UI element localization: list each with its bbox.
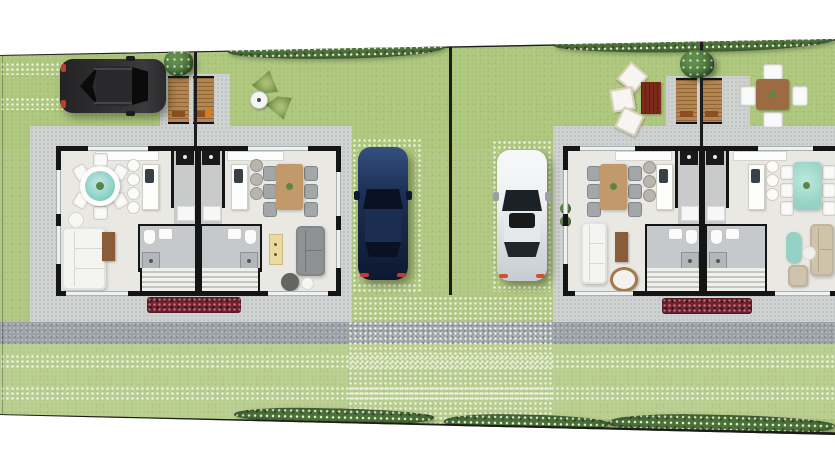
- bar-stool: [643, 189, 656, 202]
- armchair-beige: [788, 265, 808, 287]
- car-roof: [365, 209, 401, 242]
- coffee-table-wood: [615, 232, 628, 262]
- car-mirror: [545, 192, 551, 201]
- house-2-wall-left: [563, 146, 568, 296]
- washer-door: [713, 155, 717, 159]
- sofa-cushion-line: [589, 225, 590, 281]
- sofa-cushion-line: [590, 243, 604, 244]
- sofa-white: [581, 222, 607, 284]
- window: [758, 146, 813, 151]
- car-rear-window: [365, 242, 401, 257]
- car-taillight: [397, 273, 406, 277]
- suv-roof: [96, 66, 132, 106]
- house-2-party-wall: [699, 146, 705, 296]
- suv-taillight: [61, 100, 66, 108]
- car-rear-window: [504, 242, 540, 257]
- car-mirror: [354, 191, 360, 200]
- dining-chair: [780, 201, 794, 216]
- bar-stool: [643, 175, 656, 188]
- car-taillight: [499, 274, 508, 278]
- dining-chair: [780, 165, 794, 180]
- dining-chair: [822, 201, 835, 216]
- suv-roof-rail: [94, 68, 136, 70]
- toilet: [685, 229, 698, 245]
- table-plant: [610, 183, 617, 190]
- bar-stool: [643, 161, 656, 174]
- suv-dark: [60, 59, 166, 113]
- bar-stool: [766, 174, 779, 187]
- kitchen-sink: [659, 169, 668, 183]
- dining-table-teal-glass: [793, 162, 821, 210]
- washer: [706, 151, 724, 165]
- patio-door: [775, 291, 830, 296]
- window: [563, 226, 568, 264]
- bathroom: [705, 224, 767, 272]
- dining-table-wood: [600, 164, 627, 210]
- dining-chair: [822, 165, 835, 180]
- car-mirror: [493, 192, 499, 201]
- entry-mat: [707, 206, 725, 221]
- shower-drain: [716, 259, 720, 263]
- shower: [681, 252, 699, 269]
- sink-basin: [725, 228, 740, 240]
- hall-wall: [675, 150, 678, 208]
- car-taillight: [536, 274, 545, 278]
- suv-windshield: [132, 67, 148, 105]
- dining-chair: [628, 184, 642, 199]
- sofa-cushion-line: [819, 249, 832, 250]
- window: [580, 146, 635, 151]
- bathroom: [645, 224, 703, 272]
- sofa-cushion-line: [818, 228, 819, 272]
- car-windshield: [502, 190, 542, 211]
- car-windshield: [363, 189, 403, 209]
- car-blue: [358, 147, 408, 280]
- kitchen-sink: [751, 169, 760, 183]
- kitchen-counter: [733, 151, 787, 161]
- car-mirror: [406, 191, 412, 200]
- suv-roof-rail: [94, 102, 136, 104]
- dining-chair: [587, 202, 601, 217]
- dining-chair: [587, 184, 601, 199]
- washer-door: [687, 155, 691, 159]
- sofa-cushion-line: [590, 263, 604, 264]
- car-sunroof: [509, 213, 535, 228]
- entry-mat: [681, 206, 699, 221]
- suv-mirror: [126, 111, 135, 116]
- oval-table: [610, 267, 638, 292]
- bar-stool: [766, 188, 779, 201]
- suv-taillight: [61, 64, 66, 72]
- dining-chair: [780, 183, 794, 198]
- car-white: [497, 150, 547, 281]
- dining-chair: [822, 183, 835, 198]
- sink-basin: [668, 228, 683, 240]
- tree-lot-1: [164, 49, 193, 76]
- window: [563, 170, 568, 214]
- dining-chair: [587, 166, 601, 181]
- site-plan-render: [0, 0, 835, 467]
- tree-lot-2: [680, 50, 714, 78]
- bar-stool: [766, 160, 779, 173]
- dining-chair: [628, 202, 642, 217]
- chaise-teal: [786, 232, 801, 263]
- hall-wall: [726, 150, 729, 208]
- site-ground: [0, 0, 835, 467]
- car-taillight: [360, 273, 369, 277]
- table-plant: [803, 182, 810, 189]
- shower-drain: [688, 259, 692, 263]
- toilet: [710, 229, 723, 245]
- shower: [709, 252, 727, 269]
- kitchen-counter: [615, 151, 672, 161]
- round-rug: [802, 246, 816, 260]
- patio-door: [575, 291, 633, 296]
- suv-mirror: [126, 56, 135, 61]
- flower-bed: [662, 298, 752, 314]
- washer: [680, 151, 698, 165]
- dining-chair: [628, 166, 642, 181]
